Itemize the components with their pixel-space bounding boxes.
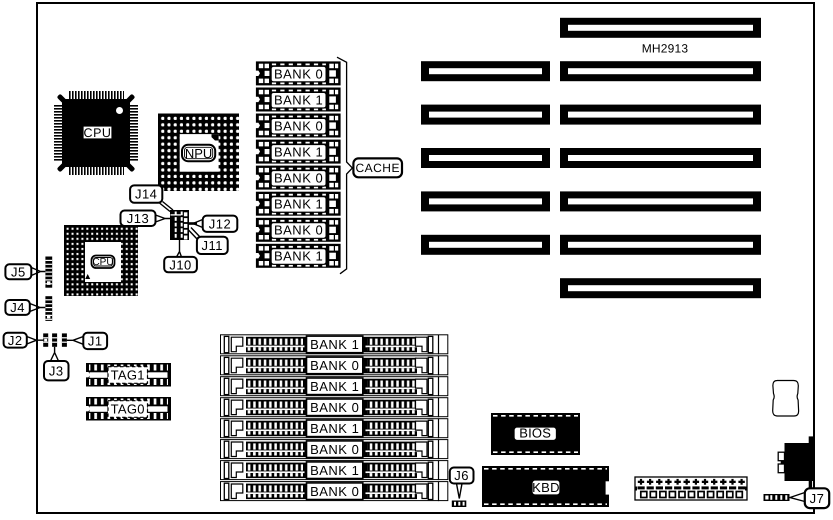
svg-text:BANK 1: BANK 1 (310, 379, 359, 394)
svg-text:J11: J11 (202, 238, 224, 253)
svg-text:BANK 1: BANK 1 (310, 463, 359, 478)
svg-text:BANK 1: BANK 1 (274, 145, 323, 160)
svg-text:BANK 0: BANK 0 (274, 118, 323, 133)
svg-text:BANK 1: BANK 1 (310, 421, 359, 436)
svg-text:J13: J13 (127, 211, 149, 226)
svg-text:BANK 1: BANK 1 (274, 92, 323, 107)
svg-text:BANK 0: BANK 0 (310, 358, 359, 373)
svg-text:J12: J12 (209, 216, 231, 231)
svg-text:BANK 1: BANK 1 (274, 249, 323, 264)
svg-text:NPU: NPU (185, 146, 212, 161)
svg-text:CPU: CPU (92, 257, 113, 268)
svg-text:BANK 0: BANK 0 (310, 442, 359, 457)
svg-text:J4: J4 (10, 300, 25, 315)
svg-text:J5: J5 (11, 264, 26, 279)
svg-text:MH2913: MH2913 (642, 42, 689, 56)
svg-text:J7: J7 (810, 491, 825, 506)
svg-text:J10: J10 (169, 257, 191, 272)
svg-text:TAG0: TAG0 (111, 402, 145, 417)
svg-text:BANK 0: BANK 0 (274, 171, 323, 186)
svg-text:BANK 0: BANK 0 (310, 400, 359, 415)
svg-text:BANK 0: BANK 0 (310, 484, 359, 499)
svg-text:J6: J6 (454, 468, 469, 483)
svg-text:BANK 0: BANK 0 (274, 223, 323, 238)
svg-text:BANK 0: BANK 0 (274, 66, 323, 81)
svg-text:J1: J1 (88, 334, 103, 349)
svg-text:BANK 1: BANK 1 (274, 197, 323, 212)
svg-text:CPU: CPU (84, 126, 112, 140)
svg-text:KBD: KBD (532, 480, 560, 495)
svg-text:J3: J3 (49, 363, 64, 378)
svg-text:CACHE: CACHE (355, 161, 400, 175)
svg-text:J2: J2 (8, 333, 23, 348)
svg-text:TAG1: TAG1 (111, 368, 145, 383)
svg-text:J14: J14 (135, 187, 157, 202)
svg-text:BANK 1: BANK 1 (310, 337, 359, 352)
svg-text:BIOS: BIOS (519, 426, 551, 441)
